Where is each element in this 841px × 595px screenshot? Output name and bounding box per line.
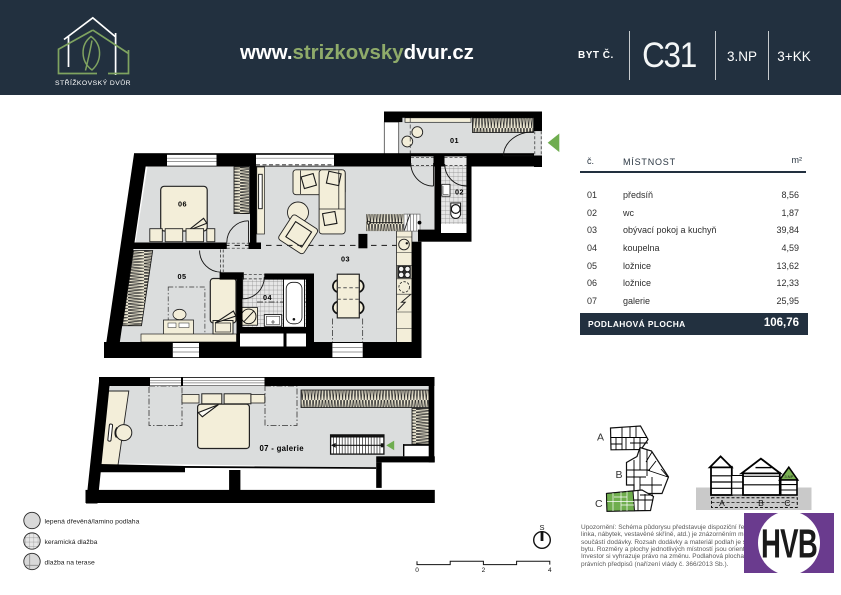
svg-text:3.NP: 3.NP bbox=[784, 474, 793, 479]
svg-text:4: 4 bbox=[548, 567, 552, 574]
svg-text:02: 02 bbox=[455, 188, 464, 197]
svg-text:B: B bbox=[758, 498, 764, 508]
svg-text:B: B bbox=[616, 469, 623, 481]
svg-text:A: A bbox=[597, 432, 604, 444]
svg-text:04: 04 bbox=[263, 293, 273, 302]
svg-text:C: C bbox=[595, 498, 603, 510]
svg-text:C: C bbox=[784, 498, 790, 508]
svg-text:keramická dlažba: keramická dlažba bbox=[45, 539, 98, 546]
svg-text:03: 03 bbox=[341, 255, 350, 264]
svg-text:lepená dřevěná/lamino podlaha: lepená dřevěná/lamino podlaha bbox=[45, 519, 140, 526]
svg-text:01: 01 bbox=[450, 136, 459, 145]
svg-text:0: 0 bbox=[415, 567, 419, 574]
svg-text:05: 05 bbox=[177, 272, 186, 281]
svg-text:dlažba na terase: dlažba na terase bbox=[45, 560, 95, 567]
svg-text:06: 06 bbox=[178, 200, 187, 209]
svg-text:07 - galerie: 07 - galerie bbox=[260, 444, 305, 453]
svg-text:A: A bbox=[719, 498, 725, 508]
svg-text:2: 2 bbox=[482, 567, 486, 574]
svg-text:S: S bbox=[539, 523, 544, 532]
